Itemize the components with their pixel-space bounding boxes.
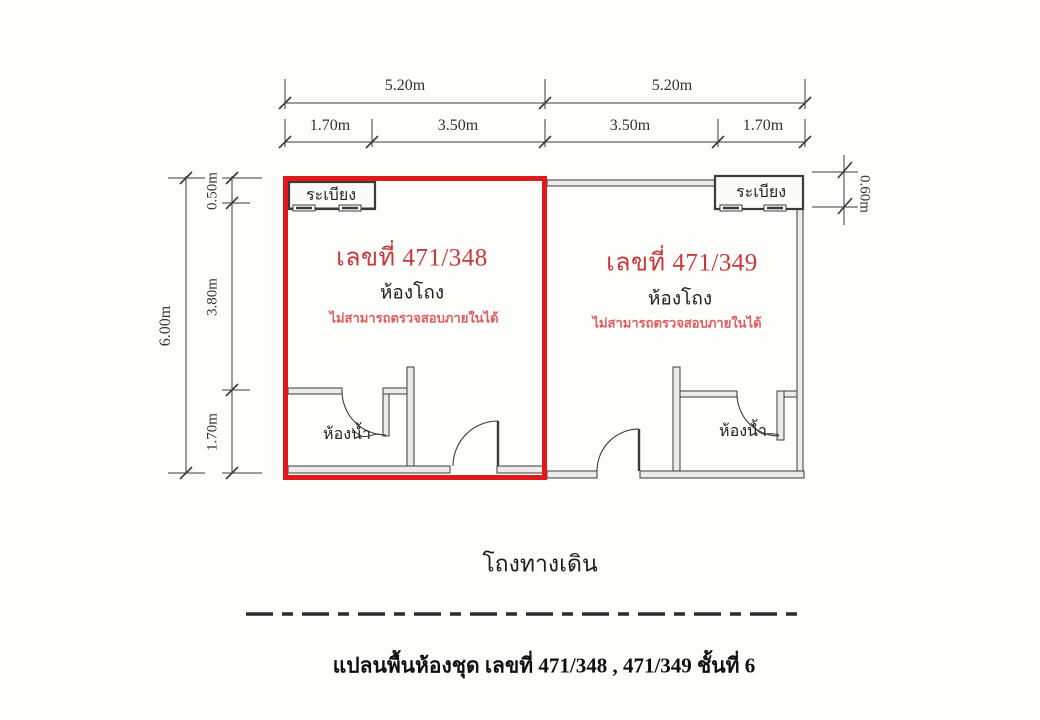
note-label-349: ไม่สามารถตรวจสอบภายในได้ [592, 317, 761, 330]
unit-348-walls [288, 367, 543, 473]
bathroom-label-348: ห้องน้ำ [323, 427, 371, 443]
hall-label-348: ห้องโถง [380, 284, 444, 303]
dim-left-overall: 6.00m [158, 306, 174, 346]
dim-top-overall-1: 5.20m [385, 78, 425, 94]
dim-top-overall-2: 5.20m [652, 78, 692, 94]
bathroom-label-349: ห้องน้ำ [719, 424, 767, 440]
hall-label-349: ห้องโถง [648, 290, 712, 309]
dim-left-seg-2: 3.80m [206, 278, 221, 316]
unit-number-349: เลขที่ 471/349 [606, 251, 758, 276]
dim-left-seg-3: 1.70m [206, 413, 221, 451]
dim-left-seg-1: 0.50m [206, 172, 221, 210]
dim-top-seg-4: 1.70m [743, 118, 783, 134]
dim-top-seg-1: 1.70m [310, 118, 350, 134]
balcony-label-349: ระเบียง [736, 185, 786, 201]
balcony-label-348: ระเบียง [306, 188, 356, 204]
dim-top-seg-2: 3.50m [438, 118, 478, 134]
note-label-348: ไม่สามารถตรวจสอบภายในได้ [329, 312, 498, 325]
unit-number-348: เลขที่ 471/348 [336, 246, 488, 271]
floor-plan-drawing [0, 0, 1040, 720]
dim-right-balcony-depth: 0.60m [857, 175, 872, 213]
floor-plan-page: 5.20m 5.20m 1.70m 3.50m 3.50m 1.70m 6.00… [0, 0, 1040, 720]
dim-top-seg-3: 3.50m [610, 118, 650, 134]
dimension-lines [168, 79, 858, 479]
plan-caption: แปลนพื้นห้องชุด เลขที่ 471/348 , 471/349… [333, 656, 756, 677]
corridor-label: โถงทางเดิน [482, 553, 597, 576]
